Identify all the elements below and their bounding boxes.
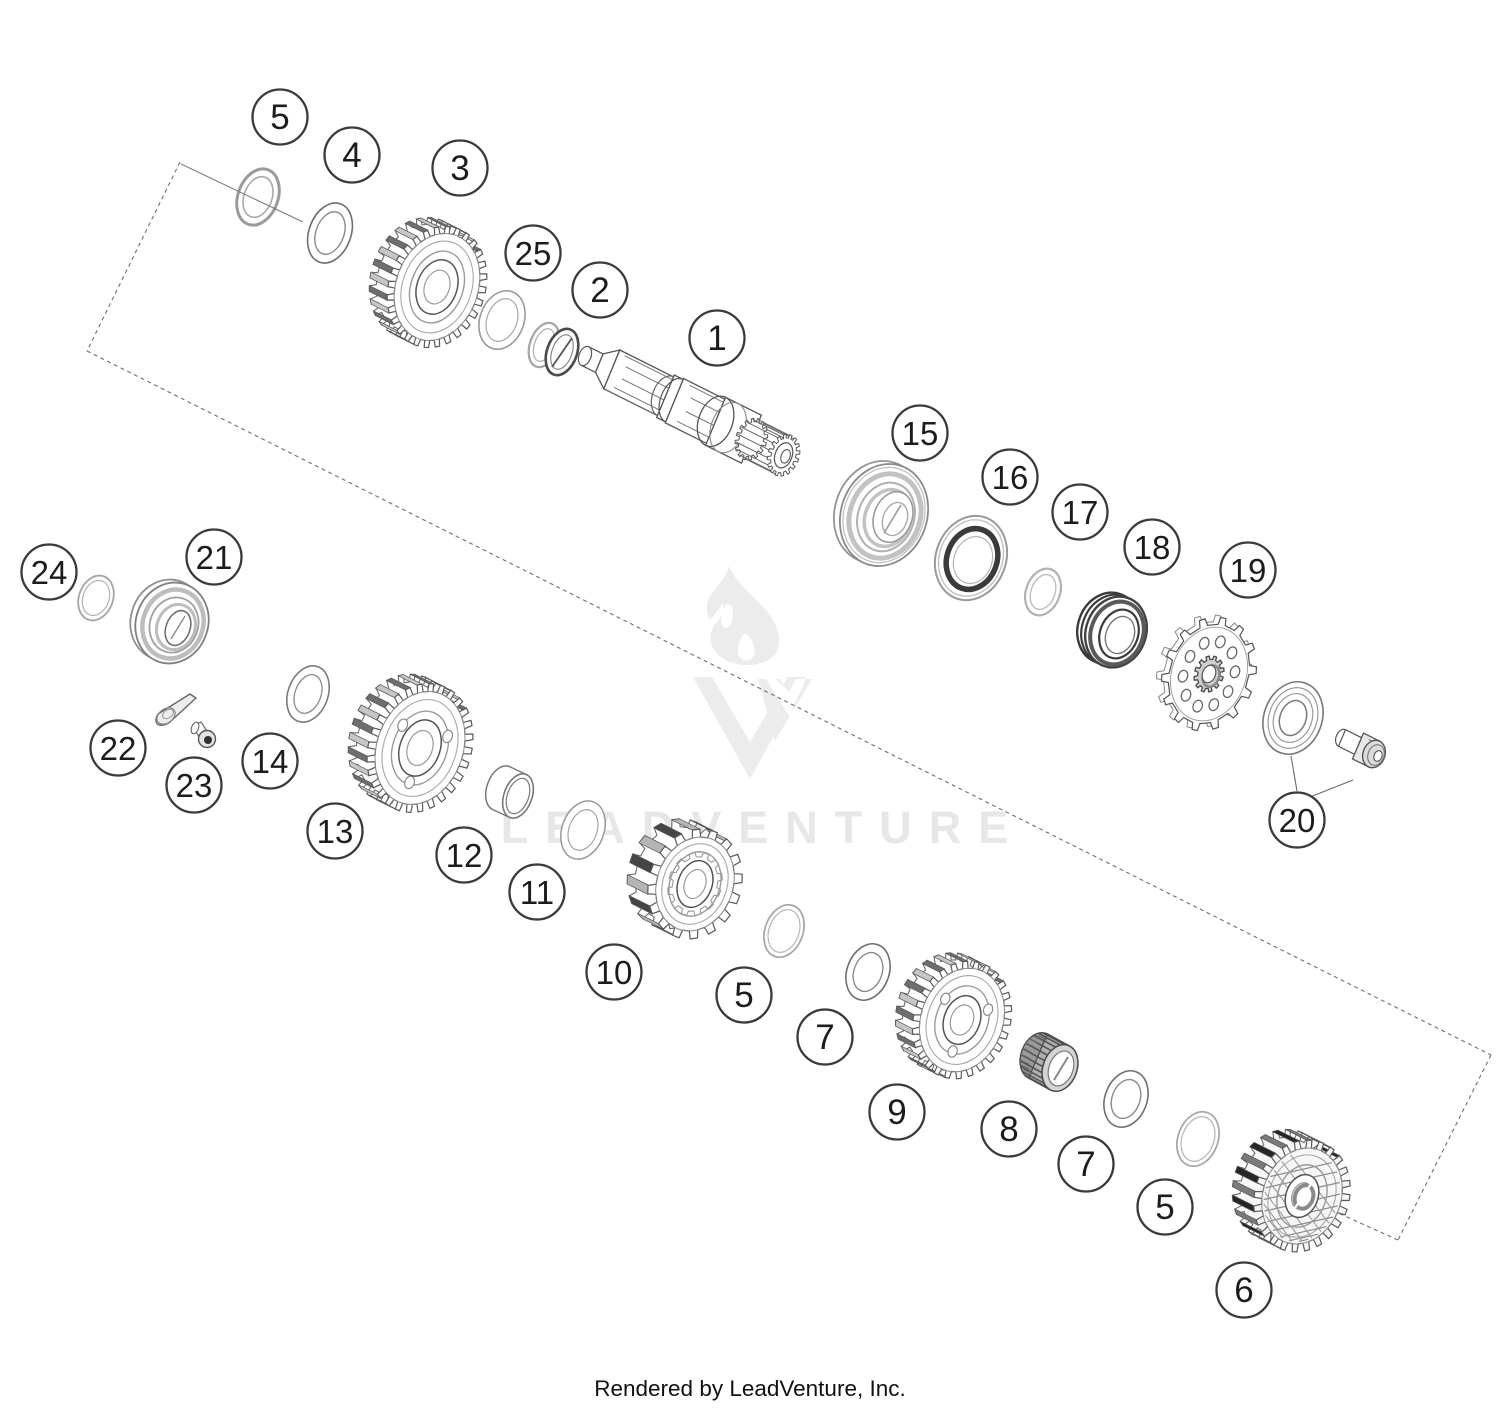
svg-text:5: 5 (1155, 1188, 1174, 1227)
svg-text:14: 14 (252, 743, 289, 780)
svg-text:8: 8 (999, 1110, 1018, 1149)
svg-text:17: 17 (1062, 494, 1099, 531)
svg-text:6: 6 (1234, 1271, 1253, 1310)
svg-text:2: 2 (590, 271, 609, 310)
svg-text:5: 5 (270, 98, 289, 137)
svg-text:11: 11 (520, 874, 554, 911)
svg-text:1: 1 (707, 319, 726, 358)
svg-text:12: 12 (446, 837, 483, 874)
svg-text:24: 24 (31, 554, 68, 591)
svg-text:25: 25 (515, 235, 552, 272)
svg-text:18: 18 (1134, 529, 1171, 566)
svg-text:23: 23 (176, 767, 213, 804)
svg-text:5: 5 (734, 976, 753, 1015)
svg-text:10: 10 (596, 954, 633, 991)
svg-text:3: 3 (450, 149, 469, 188)
svg-text:22: 22 (100, 730, 137, 767)
svg-text:21: 21 (196, 539, 233, 576)
svg-text:Rendered by LeadVenture, Inc.: Rendered by LeadVenture, Inc. (594, 1376, 905, 1401)
svg-text:13: 13 (317, 813, 354, 850)
svg-text:7: 7 (1076, 1145, 1095, 1184)
svg-text:20: 20 (1279, 802, 1316, 839)
svg-text:19: 19 (1230, 552, 1267, 589)
svg-text:4: 4 (342, 136, 361, 175)
svg-text:16: 16 (992, 459, 1029, 496)
svg-text:7: 7 (815, 1018, 834, 1057)
svg-text:9: 9 (887, 1093, 906, 1132)
svg-text:15: 15 (902, 415, 939, 452)
